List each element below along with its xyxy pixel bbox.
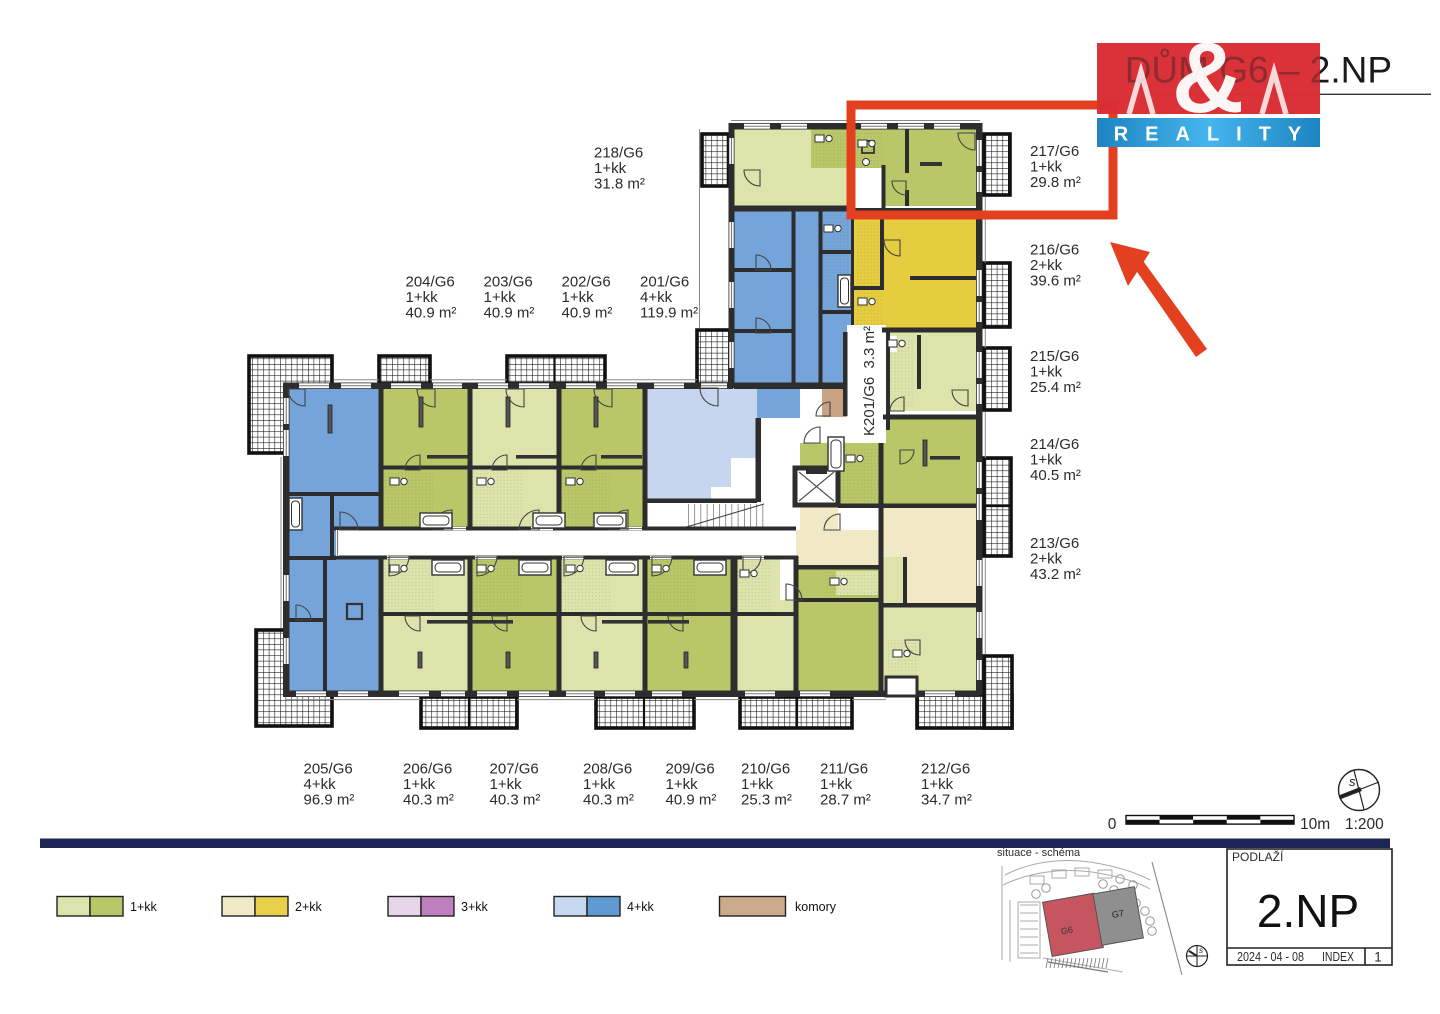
svg-text:REALITY: REALITY bbox=[1114, 124, 1319, 146]
svg-text:43.2 m²: 43.2 m² bbox=[1030, 566, 1081, 583]
svg-text:31.8 m²: 31.8 m² bbox=[594, 176, 645, 193]
svg-text:1:200: 1:200 bbox=[1345, 816, 1384, 833]
svg-text:218/G6: 218/G6 bbox=[594, 145, 643, 162]
svg-text:1+kk: 1+kk bbox=[594, 160, 627, 177]
svg-text:28.7 m²: 28.7 m² bbox=[820, 792, 871, 809]
svg-text:25.4 m²: 25.4 m² bbox=[1030, 379, 1081, 396]
svg-text:40.3 m²: 40.3 m² bbox=[403, 792, 454, 809]
svg-text:211/G6: 211/G6 bbox=[820, 761, 868, 778]
svg-text:komory: komory bbox=[795, 900, 837, 914]
svg-text:G6: G6 bbox=[1060, 925, 1074, 937]
svg-text:3+kk: 3+kk bbox=[461, 900, 489, 914]
svg-text:215/G6: 215/G6 bbox=[1030, 348, 1079, 365]
svg-text:1+kk: 1+kk bbox=[1030, 364, 1063, 381]
svg-text:G7: G7 bbox=[1111, 908, 1125, 920]
svg-text:210/G6: 210/G6 bbox=[741, 761, 790, 778]
svg-text:209/G6: 209/G6 bbox=[666, 761, 715, 778]
svg-text:40.9 m²: 40.9 m² bbox=[484, 305, 535, 322]
svg-text:s: s bbox=[1199, 946, 1203, 955]
svg-text:s: s bbox=[1349, 774, 1356, 789]
svg-text:204/G6: 204/G6 bbox=[406, 274, 455, 291]
svg-text:25.3 m²: 25.3 m² bbox=[741, 792, 792, 809]
svg-text:40.3 m²: 40.3 m² bbox=[583, 792, 634, 809]
svg-text:39.6 m²: 39.6 m² bbox=[1030, 273, 1081, 290]
svg-text:1: 1 bbox=[1374, 950, 1382, 965]
svg-text:96.9 m²: 96.9 m² bbox=[304, 792, 355, 809]
svg-text:206/G6: 206/G6 bbox=[403, 761, 452, 778]
svg-text:situace - schéma: situace - schéma bbox=[997, 847, 1081, 859]
svg-text:119.9 m²: 119.9 m² bbox=[640, 305, 698, 322]
svg-text:201/G6: 201/G6 bbox=[640, 274, 689, 291]
svg-text:29.8 m²: 29.8 m² bbox=[1030, 174, 1081, 191]
svg-text:208/G6: 208/G6 bbox=[583, 761, 632, 778]
svg-text:1+kk: 1+kk bbox=[490, 776, 523, 793]
svg-text:213/G6: 213/G6 bbox=[1030, 535, 1079, 552]
svg-text:205/G6: 205/G6 bbox=[304, 761, 353, 778]
svg-text:4+kk: 4+kk bbox=[304, 776, 337, 793]
svg-text:1+kk: 1+kk bbox=[921, 776, 954, 793]
svg-text:203/G6: 203/G6 bbox=[484, 274, 533, 291]
svg-text:212/G6: 212/G6 bbox=[921, 761, 970, 778]
svg-text:1+kk: 1+kk bbox=[130, 900, 158, 914]
svg-text:2+kk: 2+kk bbox=[1030, 551, 1063, 568]
svg-text:40.3 m²: 40.3 m² bbox=[490, 792, 541, 809]
svg-text:1+kk: 1+kk bbox=[1030, 452, 1063, 469]
svg-text:40.5 m²: 40.5 m² bbox=[1030, 467, 1081, 484]
svg-text:40.9 m²: 40.9 m² bbox=[666, 792, 717, 809]
svg-text:4+kk: 4+kk bbox=[627, 900, 655, 914]
svg-text:&: & bbox=[1172, 22, 1244, 134]
svg-text:40.9 m²: 40.9 m² bbox=[406, 305, 457, 322]
svg-text:1+kk: 1+kk bbox=[484, 289, 517, 306]
svg-text:2.NP: 2.NP bbox=[1257, 885, 1359, 937]
svg-text:2+kk: 2+kk bbox=[1030, 257, 1063, 274]
svg-text:216/G6: 216/G6 bbox=[1030, 242, 1079, 259]
svg-text:40.9 m²: 40.9 m² bbox=[562, 305, 613, 322]
svg-text:1+kk: 1+kk bbox=[406, 289, 439, 306]
svg-text:202/G6: 202/G6 bbox=[562, 274, 611, 291]
svg-text:PODLAŽÍ: PODLAŽÍ bbox=[1232, 849, 1284, 864]
svg-text:1+kk: 1+kk bbox=[666, 776, 699, 793]
svg-text:4+kk: 4+kk bbox=[640, 289, 673, 306]
svg-text:2+kk: 2+kk bbox=[295, 900, 323, 914]
svg-text:10m: 10m bbox=[1300, 816, 1330, 833]
svg-text:1+kk: 1+kk bbox=[403, 776, 436, 793]
svg-text:1+kk: 1+kk bbox=[562, 289, 595, 306]
svg-text:0: 0 bbox=[1108, 816, 1117, 833]
svg-text:214/G6: 214/G6 bbox=[1030, 436, 1079, 453]
svg-text:K201/G6 3.3 m²: K201/G6 3.3 m² bbox=[861, 326, 878, 436]
svg-text:1+kk: 1+kk bbox=[1030, 159, 1063, 176]
svg-text:2024 - 04 - 08: 2024 - 04 - 08 bbox=[1237, 949, 1304, 964]
svg-text:217/G6: 217/G6 bbox=[1030, 143, 1079, 160]
svg-text:INDEX: INDEX bbox=[1322, 949, 1354, 964]
svg-text:1+kk: 1+kk bbox=[741, 776, 774, 793]
svg-text:207/G6: 207/G6 bbox=[490, 761, 539, 778]
svg-text:1+kk: 1+kk bbox=[820, 776, 853, 793]
svg-text:34.7 m²: 34.7 m² bbox=[921, 792, 972, 809]
svg-text:1+kk: 1+kk bbox=[583, 776, 616, 793]
